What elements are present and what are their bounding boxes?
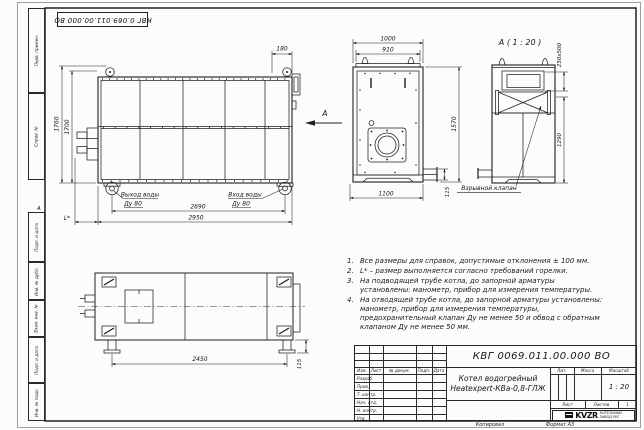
top-designation-text: КВГ 0.069.011.00.000 ВО	[54, 16, 152, 24]
explosion-valve-label: Взрывной клапан	[461, 185, 517, 192]
view-detail-labels: А ( 1 : 20 ) 250х500 1290 Взрывной клапа…	[461, 38, 563, 192]
header-masshtab: Масштаб	[601, 367, 637, 374]
document-name: Котел водогрейный Heatexpert-КВа-0,8-ГЛЖ	[446, 367, 550, 400]
dim-115-front: 115	[445, 186, 451, 197]
dim-2690: 2690	[190, 204, 205, 211]
frame-col-perv-primen: Перв. примен.	[28, 8, 45, 93]
water-outlet-dn: Ду 80	[123, 201, 142, 208]
row-utv: Утв.	[355, 414, 383, 422]
label-list: Лист	[550, 400, 585, 408]
drawing-sheet: А	[0, 0, 644, 430]
frame-col-podp-data-1: Подп. и дата	[28, 212, 45, 262]
header-lit: Лит.	[550, 367, 574, 374]
row-prov: Пров.	[355, 382, 383, 390]
dim-1760: 1760	[54, 116, 61, 131]
view-arrow-letter: А	[321, 109, 327, 118]
copied-label: Копировал	[458, 422, 522, 429]
dim-l-star: L*	[64, 215, 70, 222]
detail-view-title: А ( 1 : 20 )	[498, 38, 541, 47]
view-front-labels: 1000 910 1570 1100 115	[378, 36, 458, 198]
header-massa: Масса	[574, 367, 601, 374]
technical-notes: 1.Все размеры для справок, допустимые от…	[347, 257, 603, 333]
label-listov: Листов	[585, 400, 618, 408]
row-tkontr: Т. контр.	[355, 390, 383, 398]
dim-1290: 1290	[557, 133, 563, 147]
kvzr-logo-icon	[565, 412, 573, 419]
title-block-designation: КВГ 0069.011.00.000 ВО	[446, 346, 637, 367]
frame-col-inv-podl: Инв. № подл.	[28, 383, 45, 421]
note-item: 2.L* – размер выполняется согласно требо…	[347, 267, 603, 276]
dim-115-plan: 115	[297, 358, 303, 369]
col-header-podp: Подп.	[416, 367, 432, 374]
dim-1100: 1100	[378, 191, 393, 198]
view-main-labels: 1760 1700 180 2690 2950 L* Выход воды Ду…	[54, 46, 288, 223]
note-item: 1.Все размеры для справок, допустимые от…	[347, 257, 603, 266]
view-main-geometry	[77, 68, 300, 195]
view-plan-labels: 2450 115	[192, 356, 303, 369]
row-nachotd: Нач. отд.	[355, 398, 383, 406]
frame-col-vzam-inv: Взам. инв. №	[28, 300, 45, 337]
dim-1700: 1700	[64, 119, 71, 134]
water-inlet-dn: Ду 80	[231, 201, 250, 208]
view-plan-dimensions	[112, 340, 309, 367]
dim-1000: 1000	[380, 36, 395, 43]
water-inlet-label: Вход воды	[228, 192, 262, 199]
document-name-line1: Котел водогрейный	[459, 374, 538, 384]
frame-col-sprav-no: Справ. №	[28, 93, 45, 180]
col-header-data: Дата	[432, 367, 446, 374]
dim-1570: 1570	[451, 116, 458, 131]
view-direction-arrow: А	[305, 109, 342, 126]
row-razrab: Разраб.	[355, 374, 383, 382]
document-name-line2: Heatexpert-КВа-0,8-ГЛЖ	[450, 384, 545, 394]
water-outlet-label: Выход воды	[121, 192, 159, 199]
view-front-geometry	[353, 58, 437, 183]
note-item: 4.На отводящей трубе котла, до запорной …	[347, 296, 603, 332]
format-label: Формат А3	[528, 422, 592, 429]
col-header-ndokum: № докум.	[383, 367, 416, 374]
row-nkontr: Н. контр.	[355, 406, 383, 414]
title-block: КВГ 0069.011.00.000 ВО Изм. Лист № докум…	[354, 345, 637, 421]
dim-flue-250x500: 250х500	[557, 42, 563, 67]
value-listov: 1	[618, 400, 637, 408]
frame-col-podp-data-2: Подп. и дата	[28, 337, 45, 383]
dim-180: 180	[276, 46, 288, 53]
scale-value: 1 : 20	[601, 374, 637, 400]
dim-2450: 2450	[192, 356, 207, 363]
dim-2950: 2950	[188, 215, 203, 222]
company-logo-box: KVZR КОТЕЛЬНЫЙ ЗАВОД РУС	[552, 410, 635, 421]
dim-910: 910	[382, 47, 394, 54]
note-item: 3.На подводящей трубе котла, до запорной…	[347, 277, 603, 295]
col-header-izm: Изм.	[355, 367, 369, 374]
frame-col-inv-dubl: Инв. № дубл.	[28, 262, 45, 300]
view-detail-geometry	[478, 59, 555, 184]
view-plan-geometry	[78, 273, 305, 353]
company-name: КОТЕЛЬНЫЙ ЗАВОД РУС	[600, 411, 622, 419]
kvzr-logo-text: KVZR	[575, 411, 597, 420]
top-designation-box: КВГ 0.069.011.00.000 ВО	[57, 12, 148, 27]
col-header-list: Лист	[369, 367, 383, 374]
